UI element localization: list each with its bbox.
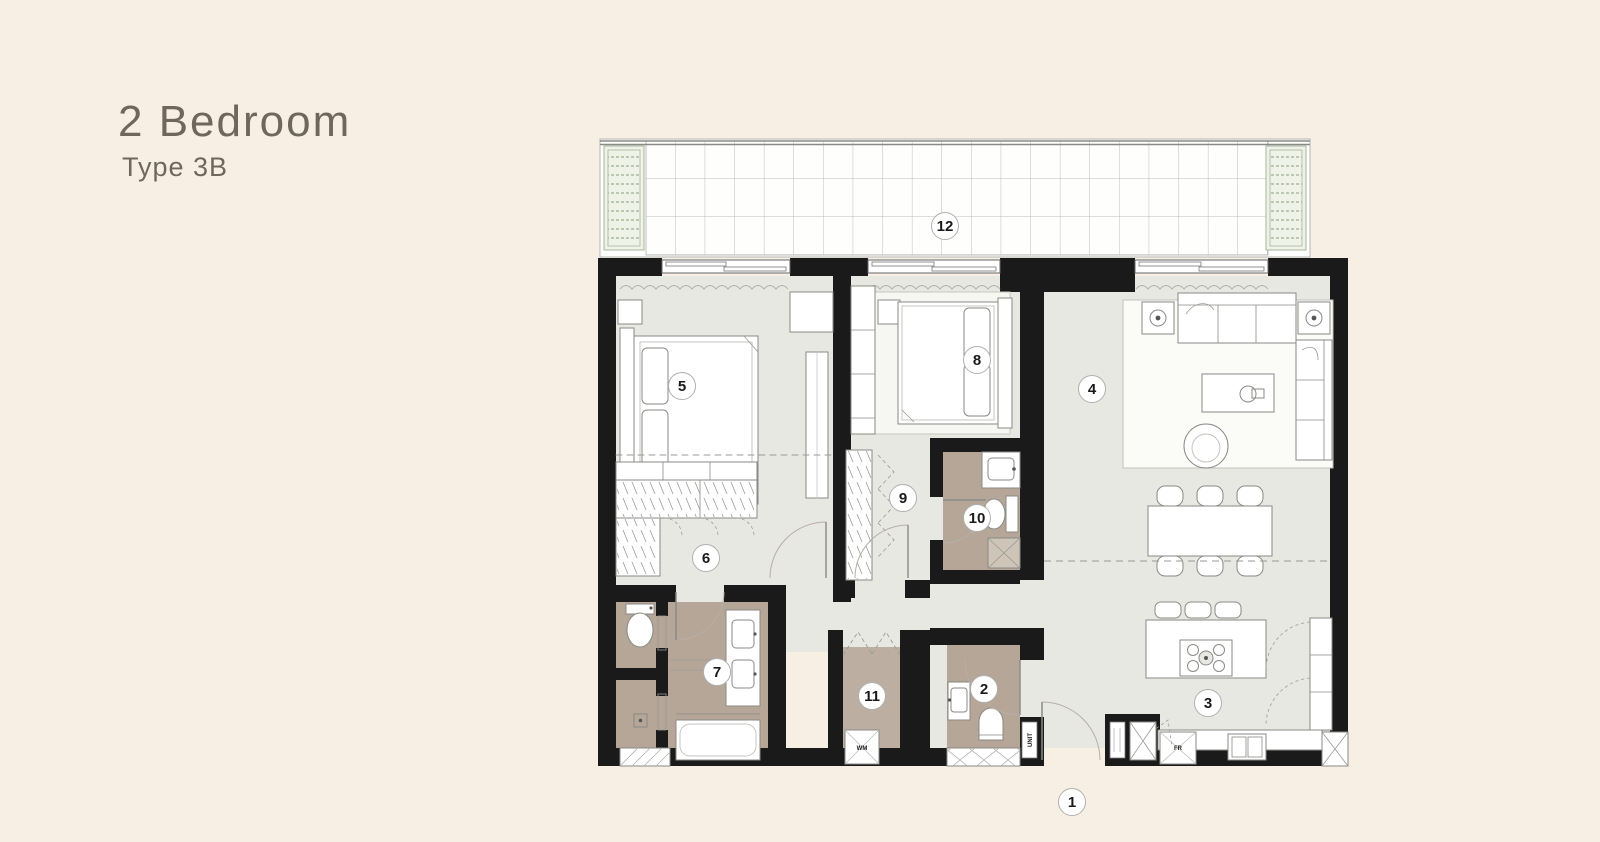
room-label-corridor: 9	[890, 485, 917, 512]
svg-text:11: 11	[864, 688, 880, 705]
window-bedroom1	[662, 260, 790, 273]
svg-text:1: 1	[1068, 794, 1076, 811]
kitchen-island	[1146, 620, 1266, 678]
shower	[988, 538, 1020, 568]
room-label-master-bath: 7	[704, 659, 731, 686]
island-stools	[1155, 602, 1241, 618]
shaft-label: UNIT	[1028, 733, 1034, 747]
svg-text:8: 8	[973, 352, 981, 369]
nightstand	[618, 300, 642, 324]
side-table-plant	[1298, 302, 1330, 334]
svg-text:4: 4	[1088, 381, 1097, 398]
planter-left	[604, 146, 644, 250]
washing-machine: WM	[845, 730, 879, 764]
fridge-label: FR	[1174, 746, 1183, 752]
room-label-living: 4	[1079, 376, 1106, 403]
wardrobe-unit	[790, 292, 833, 332]
service-shaft: UNIT	[1022, 722, 1037, 758]
svg-text:12: 12	[937, 218, 954, 235]
coffee-table	[1202, 374, 1274, 412]
dining-set	[1148, 486, 1272, 576]
corner-duct	[1322, 732, 1348, 766]
shower-floor-tile	[620, 748, 670, 766]
sink-cabinet	[1228, 734, 1266, 760]
window-bedroom2	[868, 260, 1000, 273]
window-living	[1135, 260, 1268, 273]
washer-label: WM	[857, 746, 868, 752]
svg-text:7: 7	[713, 664, 721, 681]
bed-double	[898, 298, 1012, 428]
double-vanity	[726, 610, 760, 706]
svg-text:5: 5	[678, 378, 686, 395]
side-table-plant	[1142, 302, 1174, 334]
room-label-bath2: 10	[964, 505, 991, 532]
riser-shaft	[1110, 722, 1125, 758]
room-label-balcony: 12	[932, 213, 959, 240]
room-label-kitchen: 3	[1195, 690, 1222, 717]
armchair	[1184, 424, 1228, 468]
shower-floor	[947, 748, 1020, 766]
fridge: FR	[1160, 732, 1196, 764]
svg-text:3: 3	[1204, 695, 1212, 712]
closet-shelf	[616, 462, 757, 480]
entry-duct	[1130, 722, 1156, 760]
wardrobe	[851, 286, 875, 434]
chaise-sofa	[1296, 340, 1332, 460]
svg-text:6: 6	[702, 550, 710, 567]
room-label-entrance: 1	[1059, 789, 1086, 816]
void	[786, 652, 828, 748]
vanity	[948, 682, 970, 720]
room-label-bedroom1: 5	[669, 373, 696, 400]
wc-toilet	[626, 604, 654, 647]
bathtub	[676, 714, 760, 760]
svg-text:2: 2	[980, 681, 988, 698]
floor-plan-svg: FR	[0, 0, 1600, 842]
nightstand	[878, 300, 900, 324]
room-label-dressing: 6	[693, 545, 720, 572]
svg-text:9: 9	[899, 490, 907, 507]
dining-table	[1148, 506, 1272, 556]
balcony	[600, 139, 1310, 257]
planter-right	[1266, 146, 1306, 250]
sofa	[1178, 293, 1296, 343]
svg-text:10: 10	[969, 510, 986, 527]
floorplan-page: 2 Bedroom Type 3B	[0, 0, 1600, 842]
room-label-bedroom2: 8	[964, 347, 991, 374]
room-label-bath3: 2	[971, 676, 998, 703]
room-label-laundry: 11	[859, 683, 886, 710]
balcony-tile-grid	[646, 141, 1268, 255]
